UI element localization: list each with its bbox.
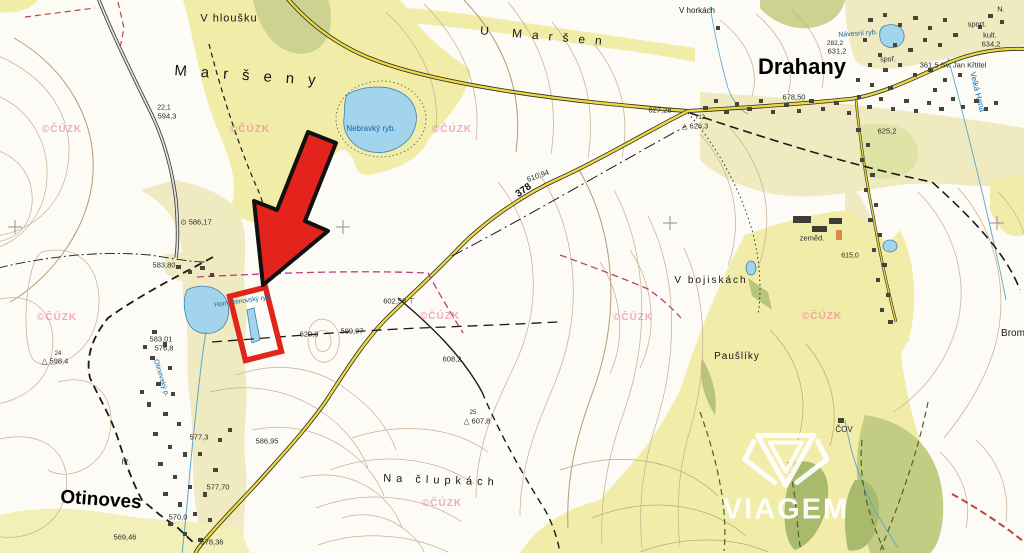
label-elev-610-94: 610,94 [526,169,550,184]
label-elev-634-2: 634,2 [982,40,1001,48]
map-labels-layer: V hlouškuMaršenyU MaršenDrahanyOtinovesV… [0,0,1024,553]
label-otinovsky-p: Otinovský p. [152,359,170,398]
viagem-watermark: VIAGEM [723,430,849,527]
label-nebravky-ryb: Nebravký ryb. [346,125,395,133]
label-sport: sport. [968,20,987,28]
label-elev-620-3: 620,3 [300,330,319,338]
cuzk-attribution-watermark: ©ČÚZK [422,499,462,509]
label-elev-626-3: △ 626,3 [682,122,709,130]
label-horni-otinovsky-ryb: Horní otinovský ryb. [214,295,272,309]
label-n-abbr: N. [997,5,1005,13]
label-elev-615-0: 615,0 [841,253,859,260]
label-brom: Brom [1001,329,1024,339]
label-elev-598-4: △ 598,4 [42,357,69,365]
label-elev-678-50: 678,50 [783,93,806,101]
label-pausliky: Paušlíky [714,352,760,362]
label-elev-583-80: 583,80 [153,261,176,269]
label-u-marsen: U Maršen [480,24,613,47]
label-otinoves: Otinoves [60,488,142,513]
label-velka-hana: Velká Haná [968,71,986,113]
label-marseny: Maršeny [174,63,330,89]
label-elev-22-1: 22,1 [157,105,171,112]
label-church-sv-jan: 361,5 Sv. Jan Křtitel [920,61,987,69]
viagem-logo-text: VIAGEM [723,494,849,527]
label-elev-577-70: 577,70 [207,483,230,491]
cuzk-attribution-watermark: ©ČÚZK [420,312,460,322]
cuzk-attribution-watermark: ©ČÚZK [432,125,472,135]
label-kult: kult. [983,31,997,39]
label-elev-631-2: 631,2 [828,47,847,55]
cuzk-attribution-watermark: ©ČÚZK [230,125,270,135]
map-canvas: V hlouškuMaršenyU MaršenDrahanyOtinovesV… [0,0,1024,553]
label-elev-577-3: 577,3 [190,433,209,441]
cuzk-attribution-watermark: ©ČÚZK [613,313,653,323]
viagem-logo-icon [738,430,834,490]
label-elev-602-58: 602,58 ⊤ [383,297,415,305]
label-elev-608-2: 608,2 [443,355,462,363]
label-elev-583-01: 583,01 [150,335,173,343]
label-elev-578-36: 578,36 [201,538,224,546]
label-elev-627-28: 627,28 [649,106,672,114]
label-elev-282-2: 282,2 [827,41,843,48]
cuzk-attribution-watermark: ©ČÚZK [802,312,842,322]
label-elev-586-95: 586,95 [256,437,279,445]
label-elev-569-46: 569,46 [114,533,137,541]
cuzk-attribution-watermark: ©ČÚZK [37,313,77,323]
label-navesni-ryb: Návesní ryb. [838,29,878,39]
label-v-hlousku: V hloušku [200,14,257,25]
label-elev-594-3: 594,3 [158,112,177,120]
label-elev-625-2: 625,2 [878,127,897,135]
label-hrbitov: hř. [122,458,131,466]
label-elev-25: 25 [470,410,477,416]
label-na-clupkach: Na člupkách [383,473,499,488]
label-elev-24: 24 [55,351,62,357]
label-drahany: Drahany [758,56,846,78]
label-elev-607-8: △ 607,8 [464,417,491,425]
label-elev-586-17: ⊙ 586,17 [180,218,211,226]
label-elev-712: 712 [695,115,705,121]
label-v-bojiskach: V bojiskách [674,276,747,286]
label-v-horkach: V horkách [679,7,715,15]
label-elev-576-8: 576,8 [155,344,174,352]
label-road-378: 378 [514,182,533,200]
label-elev-570-0: 570,0 [169,513,188,521]
label-spor: spoř. [880,57,896,64]
cuzk-attribution-watermark: ©ČÚZK [42,125,82,135]
label-elev-599-97: 599,97 [341,327,364,335]
label-zemed: zeměd. [800,234,825,242]
